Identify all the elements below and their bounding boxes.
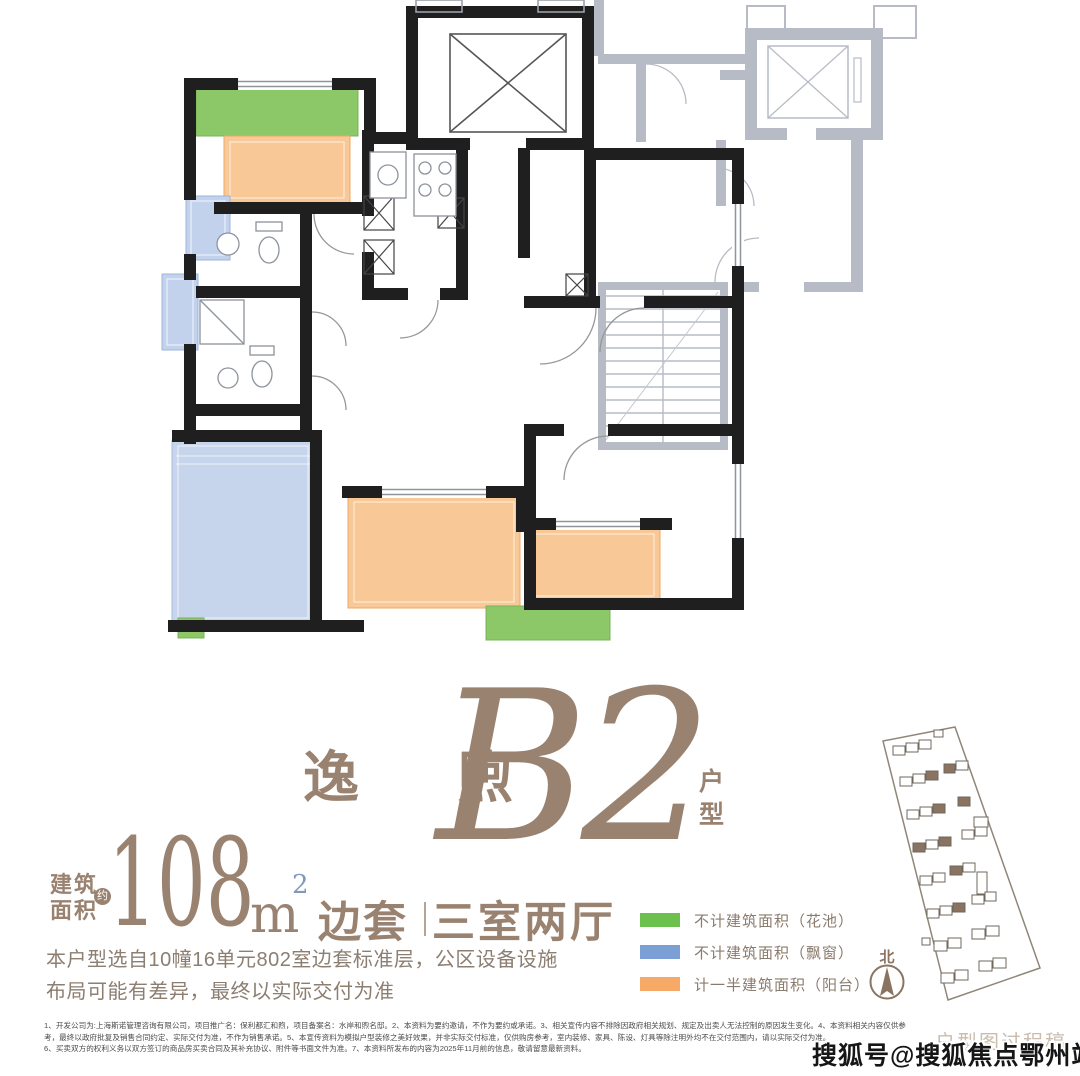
disclaimer-line3: 6、买卖双方的权利义务以双方签订的商品房买卖合同及其补充协议、附件等书面文件为准… bbox=[44, 1043, 906, 1055]
orange-swatch bbox=[640, 977, 680, 991]
legend: 不计建筑面积（花池） 不计建筑面积（飘窗） 计一半建筑面积（阳台） bbox=[640, 912, 870, 1008]
room-layout: 三室两厅 bbox=[432, 888, 616, 950]
area-label: 建筑 面积 bbox=[50, 872, 100, 925]
unit-description: 本户型选自10幢16单元802室边套标准层，公区设备设施 布局可能有差异，最终以… bbox=[46, 944, 558, 1008]
legend-item-balcony: 计一半建筑面积（阳台） bbox=[640, 976, 870, 992]
floorplan-poster: 北 逸 煦 B2 户型 建筑 面积 约 108 m 2 边套 ｜ 三室两厅 本户… bbox=[0, 0, 1080, 1076]
north-label: 北 bbox=[879, 949, 894, 966]
plan-code: B2 bbox=[436, 664, 705, 872]
description-line2: 布局可能有差异，最终以实际交付为准 bbox=[46, 976, 558, 1008]
blue-swatch bbox=[640, 945, 680, 959]
description-line1: 本户型选自10幢16单元802室边套标准层，公区设备设施 bbox=[46, 944, 558, 976]
legend-label: 计一半建筑面积（阳台） bbox=[694, 974, 870, 995]
disclaimer-line2: 考，最终以政府批复及销售合同约定、实际交付为准，不作为销售承诺。5、本宣传资料为… bbox=[44, 1032, 906, 1044]
legend-label: 不计建筑面积（花池） bbox=[694, 910, 854, 931]
legend-item-baywindow: 不计建筑面积（飘窗） bbox=[640, 944, 870, 960]
legend-item-flowerbed: 不计建筑面积（花池） bbox=[640, 912, 870, 928]
disclaimer-line1: 1、开发公司为:上海斯诺管理咨询有限公司，项目推广名：保利都汇和煦，项目备案名：… bbox=[44, 1020, 906, 1032]
disclaimer: 1、开发公司为:上海斯诺管理咨询有限公司，项目推广名：保利都汇和煦，项目备案名：… bbox=[44, 1020, 906, 1055]
floor-plan-drawing bbox=[0, 0, 1080, 660]
green-swatch bbox=[640, 913, 680, 927]
elevator-shaft bbox=[416, 0, 584, 132]
area-unit-exponent: 2 bbox=[292, 870, 309, 900]
site-plan: 北 bbox=[850, 700, 1080, 1020]
plan-type-suffix: 户型 bbox=[699, 766, 729, 831]
sohu-watermark: 搜狐号@搜狐焦点鄂州站 bbox=[812, 1036, 1080, 1072]
duct-shafts bbox=[364, 196, 588, 296]
legend-label: 不计建筑面积（飘窗） bbox=[694, 942, 854, 963]
north-compass-icon: 北 bbox=[871, 949, 904, 999]
position-tag: 边套 bbox=[318, 888, 408, 950]
area-value: 108 bbox=[108, 822, 255, 944]
